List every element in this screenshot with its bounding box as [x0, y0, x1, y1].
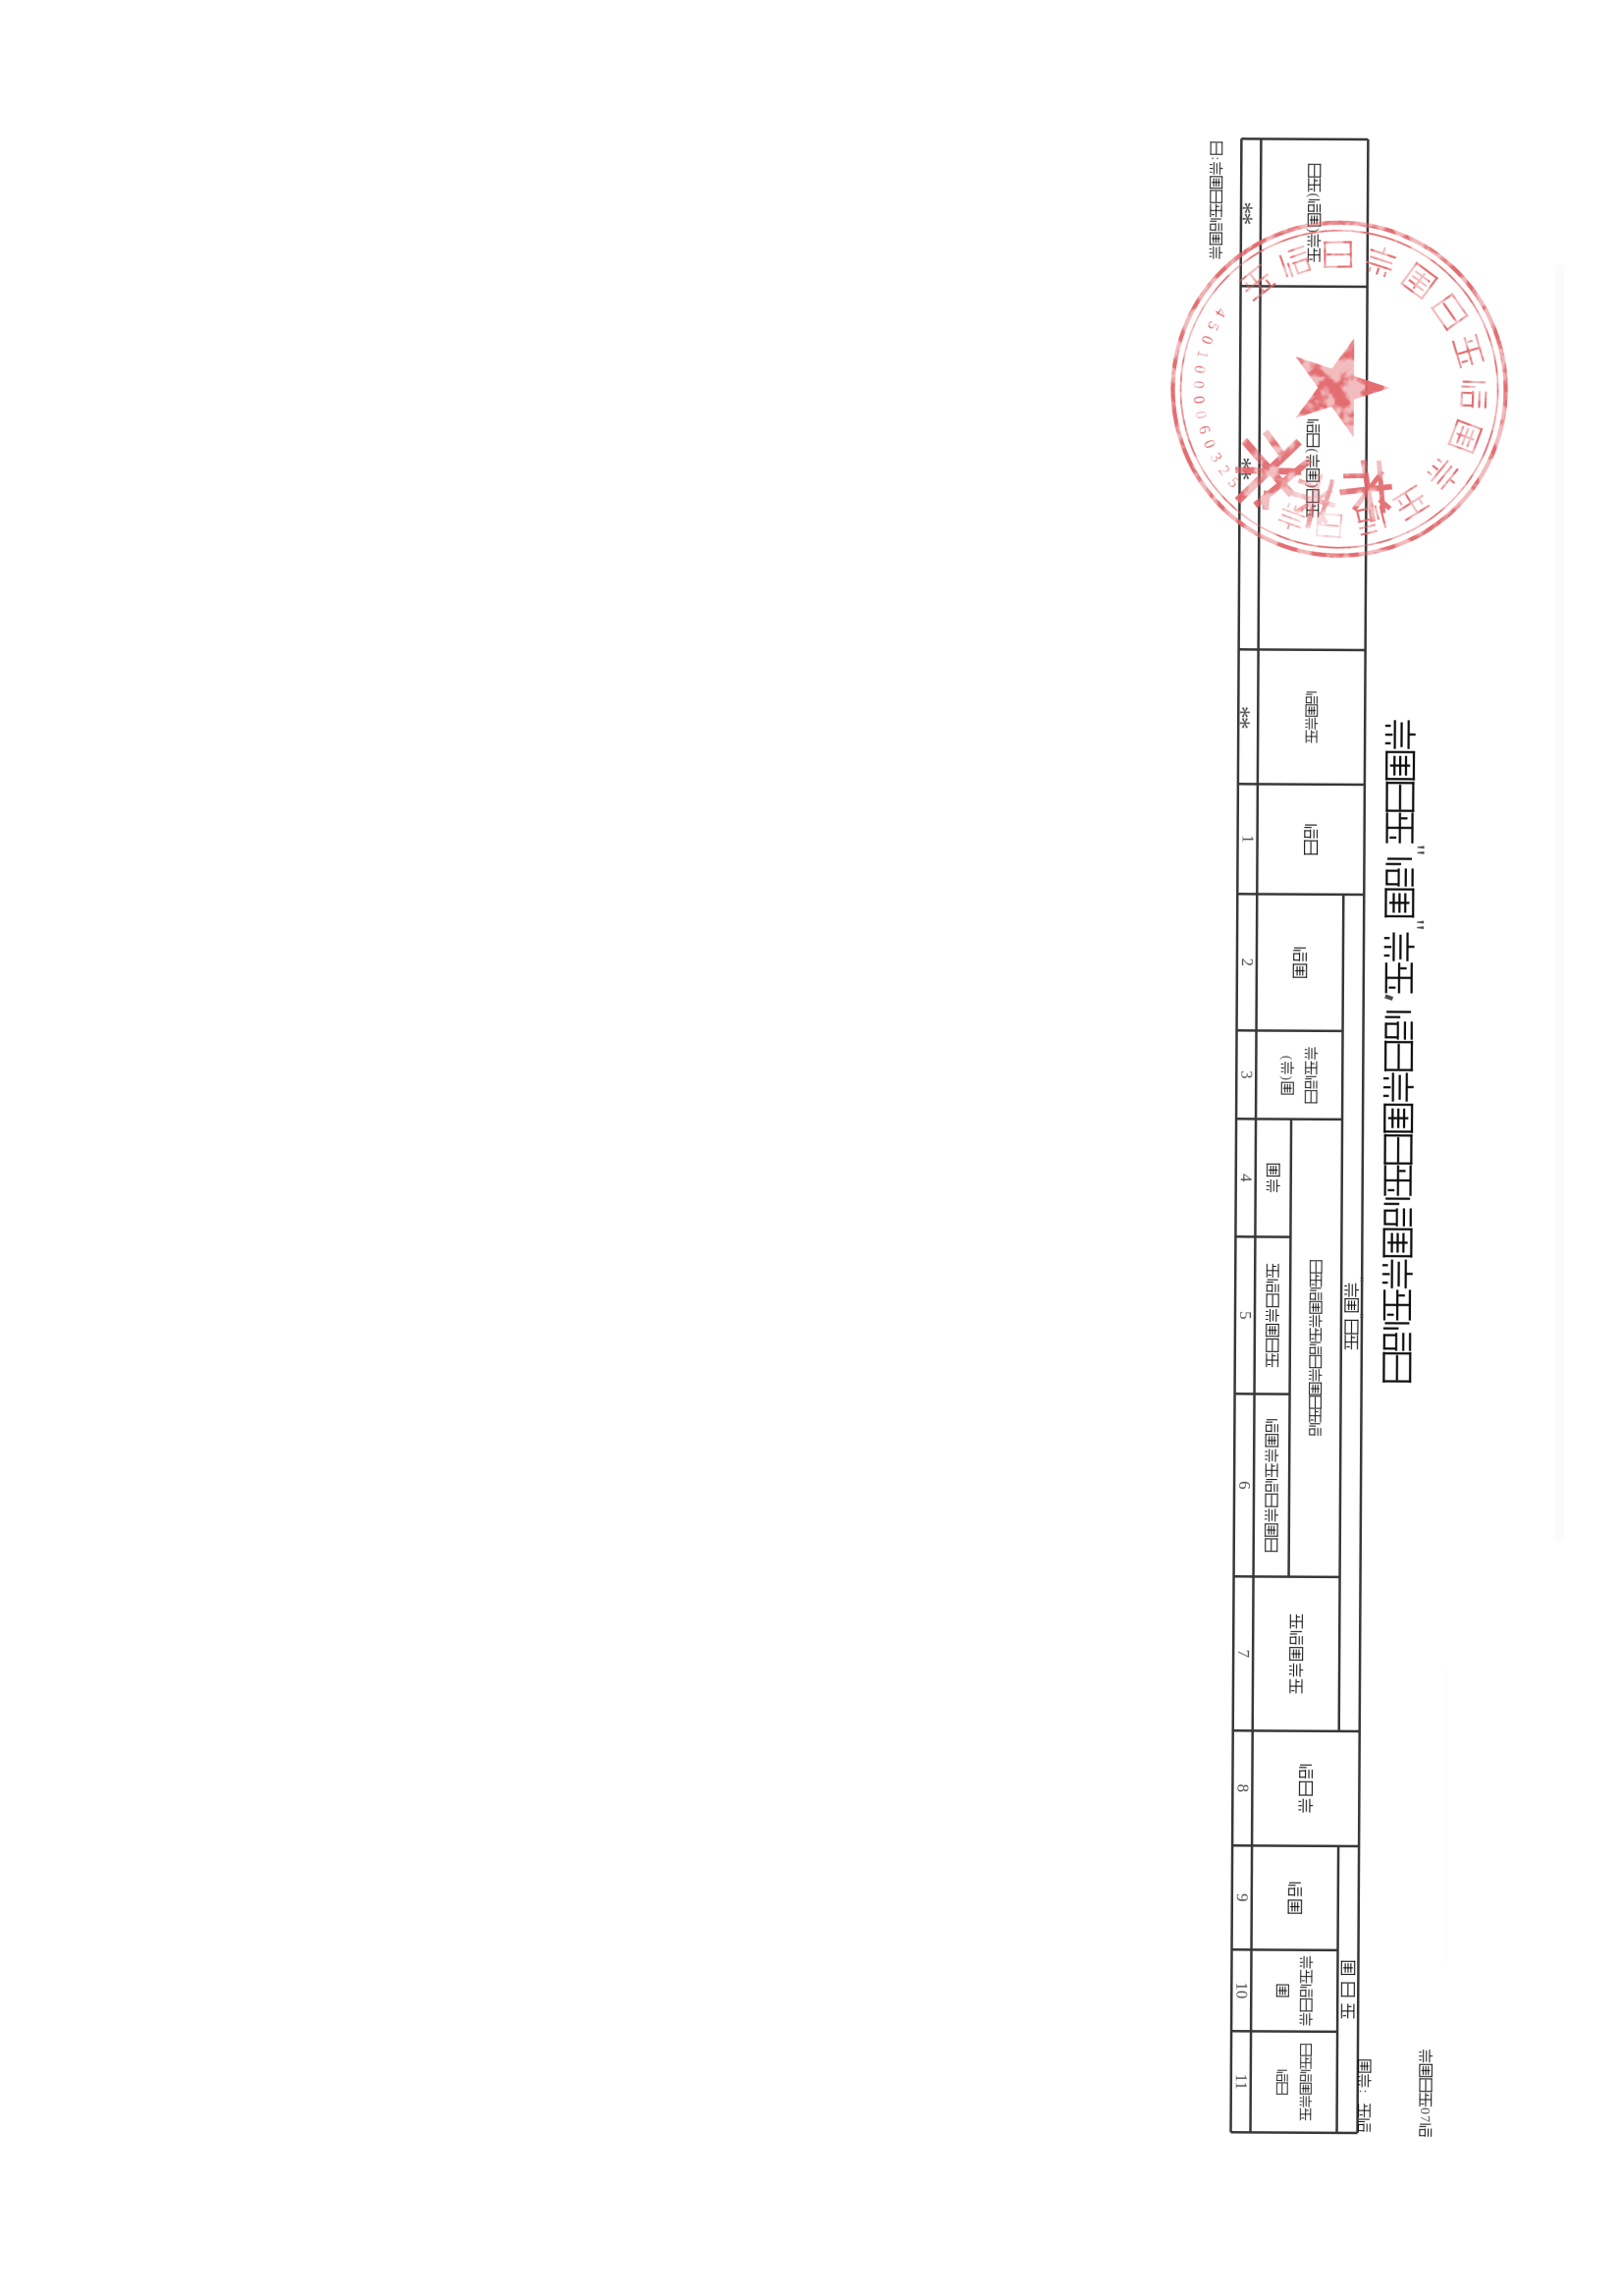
svg-text:1: 1: [1239, 835, 1258, 844]
svg-text::: :: [1356, 2089, 1371, 2093]
svg-text:(: (: [1306, 192, 1322, 197]
svg-text:): ): [1278, 1075, 1294, 1080]
svg-text:7: 7: [1234, 1650, 1253, 1659]
svg-text:0: 0: [1190, 380, 1207, 389]
svg-text:5: 5: [1236, 1311, 1255, 1320]
svg-text:7: 7: [1417, 2115, 1432, 2122]
svg-text:8: 8: [1233, 1784, 1252, 1793]
svg-text:10: 10: [1232, 1982, 1251, 1998]
svg-text:(: (: [1278, 1056, 1294, 1061]
svg-text:": ": [1350, 1277, 1366, 1283]
svg-text:**: **: [1229, 201, 1258, 224]
svg-text:": ": [1398, 844, 1430, 855]
svg-text:(: (: [1304, 448, 1320, 453]
svg-text::: :: [1209, 156, 1223, 160]
svg-text:6: 6: [1235, 1481, 1254, 1490]
svg-text:": ": [1350, 1313, 1366, 1319]
svg-text:3: 3: [1237, 1070, 1256, 1079]
svg-text:": ": [1398, 919, 1430, 931]
svg-text:9: 9: [1233, 1893, 1252, 1902]
svg-text:2: 2: [1238, 958, 1257, 967]
svg-text:0: 0: [1190, 396, 1208, 405]
svg-text:**: **: [1226, 706, 1255, 729]
svg-text:11: 11: [1232, 2074, 1251, 2090]
svg-text:4: 4: [1237, 1174, 1256, 1182]
svg-text:0: 0: [1417, 2107, 1432, 2114]
